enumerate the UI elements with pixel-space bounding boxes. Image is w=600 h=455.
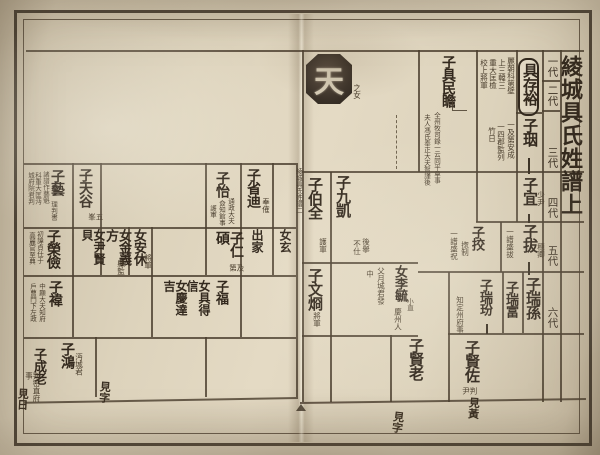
son-ye-note: 理判書 (49, 201, 56, 227)
connector-line (528, 262, 530, 275)
generation-label-1: 一代 (546, 56, 557, 80)
see-marker-hwang: 見黃 (466, 397, 479, 422)
grid-line (24, 163, 296, 165)
son-wi-note: 戶曹門下左政 (28, 283, 35, 329)
see-marker-ja-right: 見字 (390, 410, 404, 435)
connector-line (528, 158, 530, 174)
son-hyeonro-name: 子賢老 (407, 338, 422, 388)
daughter-hyeon: 女玄 (279, 229, 291, 255)
generation-label-3: 三代 (546, 147, 557, 171)
son-ye-note: 諸譜作藝魁 (41, 171, 48, 221)
son-yeonggeom-name: 子榮儉 (45, 229, 59, 269)
collection-seal: 天 (306, 54, 352, 104)
grid-line (302, 171, 584, 173)
founder-name: 具存裕 (518, 58, 539, 116)
son-gyo-note: 一譜盛祝 (450, 230, 458, 270)
founder-note: 校上將軍 (480, 59, 488, 115)
son-cheongok-note: 五峯 (88, 213, 103, 227)
grid-line (390, 335, 392, 402)
son-wi-note: 中顯大夫知府 (37, 283, 44, 329)
son-gukae-note: 後擧 (362, 238, 370, 258)
son-inseok-note: 及第 (229, 264, 244, 278)
grid-line (24, 275, 296, 277)
son-mungyeong-name: 子文烱 (306, 268, 321, 312)
grid-line (72, 163, 74, 337)
generation-label-5: 五代 (546, 245, 557, 269)
son-bok-name: 子福 (215, 280, 228, 306)
son-gyo-note: 揔制 (461, 241, 469, 259)
son-gukae-note: 不仕 (353, 240, 361, 260)
son-minseom-note: 夫人馮氏奉正大夫智謹後 (422, 114, 429, 216)
grid-line (151, 227, 153, 337)
connector-bracket (452, 98, 467, 111)
son-i-note: 通政大夫 (226, 198, 233, 230)
grid-line (418, 271, 584, 273)
generation-label-2: 二代 (546, 85, 557, 109)
genealogy-scan-page: 綾城具氏姓譜二 綾城具氏姓譜上 一代 二代 三代 四代 五代 六代 天 (0, 0, 600, 455)
son-bal-name: 子拔 (521, 224, 536, 262)
son-cheongok-name: 子天谷 (77, 168, 91, 214)
son-gyo-name: 子挍 (471, 226, 484, 260)
connector-line (486, 324, 488, 334)
son-seobun-note: 知定州府事 (456, 296, 464, 334)
son-seoson-name: 子瑞孫 (524, 277, 539, 323)
generation-label-6: 六代 (546, 307, 557, 331)
daughter-gudeuksin: 女具得信 (186, 280, 210, 324)
son-baekjeon-note: 護軍 (319, 238, 327, 258)
grid-line (302, 335, 418, 337)
founder-note: 重大匡檢 (489, 59, 497, 115)
note-chulga: 出家 (251, 229, 263, 255)
grid-line (24, 337, 296, 339)
founder-note: 上三韓三 (498, 59, 506, 115)
grid-line (95, 337, 97, 397)
see-marker-il: 見日 (15, 388, 27, 413)
son-seongjeok-note: 奉傕 (262, 198, 270, 220)
daughter-gyeongdalgil: 女慶達吉 (163, 280, 187, 324)
grid-line (205, 337, 207, 397)
son-ui-name: 子宜 (521, 177, 536, 213)
daughter-kimuibang-note: 縣監 (117, 260, 125, 276)
son-yeon-note: 一四郡監列 (497, 123, 505, 179)
grid-line (542, 50, 544, 402)
grid-line (302, 50, 304, 402)
son-bal-note: 一譜盛拔 (506, 228, 514, 268)
grid-line (26, 50, 584, 52)
daughter-anhyu-note: 將軍 (144, 254, 152, 270)
son-minseom-note: 全州牧司錄一云同平章事 (432, 112, 439, 214)
grid-line (24, 397, 298, 403)
son-mungyeong-note: 將軍 (313, 312, 321, 330)
daughter-lee-note: 小直 (405, 298, 412, 312)
son-yeonggeom-note: 高麗官至典 (27, 232, 34, 274)
connector-line (528, 214, 530, 223)
grid-line (448, 272, 450, 402)
grid-line (302, 262, 418, 264)
see-marker-ja-left: 見字 (97, 381, 110, 406)
son-yeonggeom-note: 初諱貞仕于 (35, 231, 42, 273)
son-seongjeok-name: 子省迪 (245, 168, 259, 220)
son-hong-name: 子鴻 (59, 342, 73, 374)
son-i-note: 僉知館事 (217, 200, 224, 232)
son-yeon-note: 竹日 (488, 127, 496, 147)
grid-line (272, 163, 274, 275)
son-seobu-name: 子瑞富 (505, 281, 518, 323)
daughter-lee-note: 慶州人 (394, 308, 402, 334)
daughter-yunhyeon: 女尹賢貝 (81, 229, 105, 273)
grid-line (448, 333, 584, 335)
founder-note: 麗朝科第壁 (507, 57, 515, 123)
son-wi-name: 子褘 (47, 280, 61, 306)
seal-character: 天 (314, 57, 344, 101)
son-baekjeon-name: 子伯全 (306, 177, 321, 235)
grid-line (296, 163, 298, 397)
connector-line (396, 115, 397, 169)
son-yeon-note: 一及第安成 (507, 121, 515, 177)
son-i-note: 護軍 (208, 205, 215, 223)
son-hong-note: 沔城君 (75, 353, 83, 379)
son-seobun-name: 子瑞玢 (479, 279, 492, 323)
grid-line (330, 172, 332, 402)
generation-label-4: 四代 (546, 197, 557, 221)
grid-line (476, 50, 478, 222)
son-ui-note: 少尹 (537, 191, 545, 211)
daughter-lee-note: 中 (366, 270, 374, 279)
son-hyeonjwa-name: 子賢佐 (463, 340, 478, 386)
son-minseom-note-continued: 之女 (353, 84, 361, 102)
grid-line (205, 163, 207, 275)
son-bal-note: 穗卿 (537, 243, 545, 263)
grid-line (500, 222, 502, 272)
son-yeon-name: 子珚 (521, 118, 536, 156)
grid-line (418, 50, 420, 172)
son-ye-note: 城府院君判 (26, 172, 33, 222)
fold-mark (296, 404, 306, 411)
son-ye-name: 子藝 (49, 169, 63, 199)
son-gukae-name: 子九凱 (334, 175, 349, 235)
daughter-lee-note: 父月城君發 (377, 267, 385, 313)
book-title: 綾城具氏姓譜上 (559, 55, 581, 227)
